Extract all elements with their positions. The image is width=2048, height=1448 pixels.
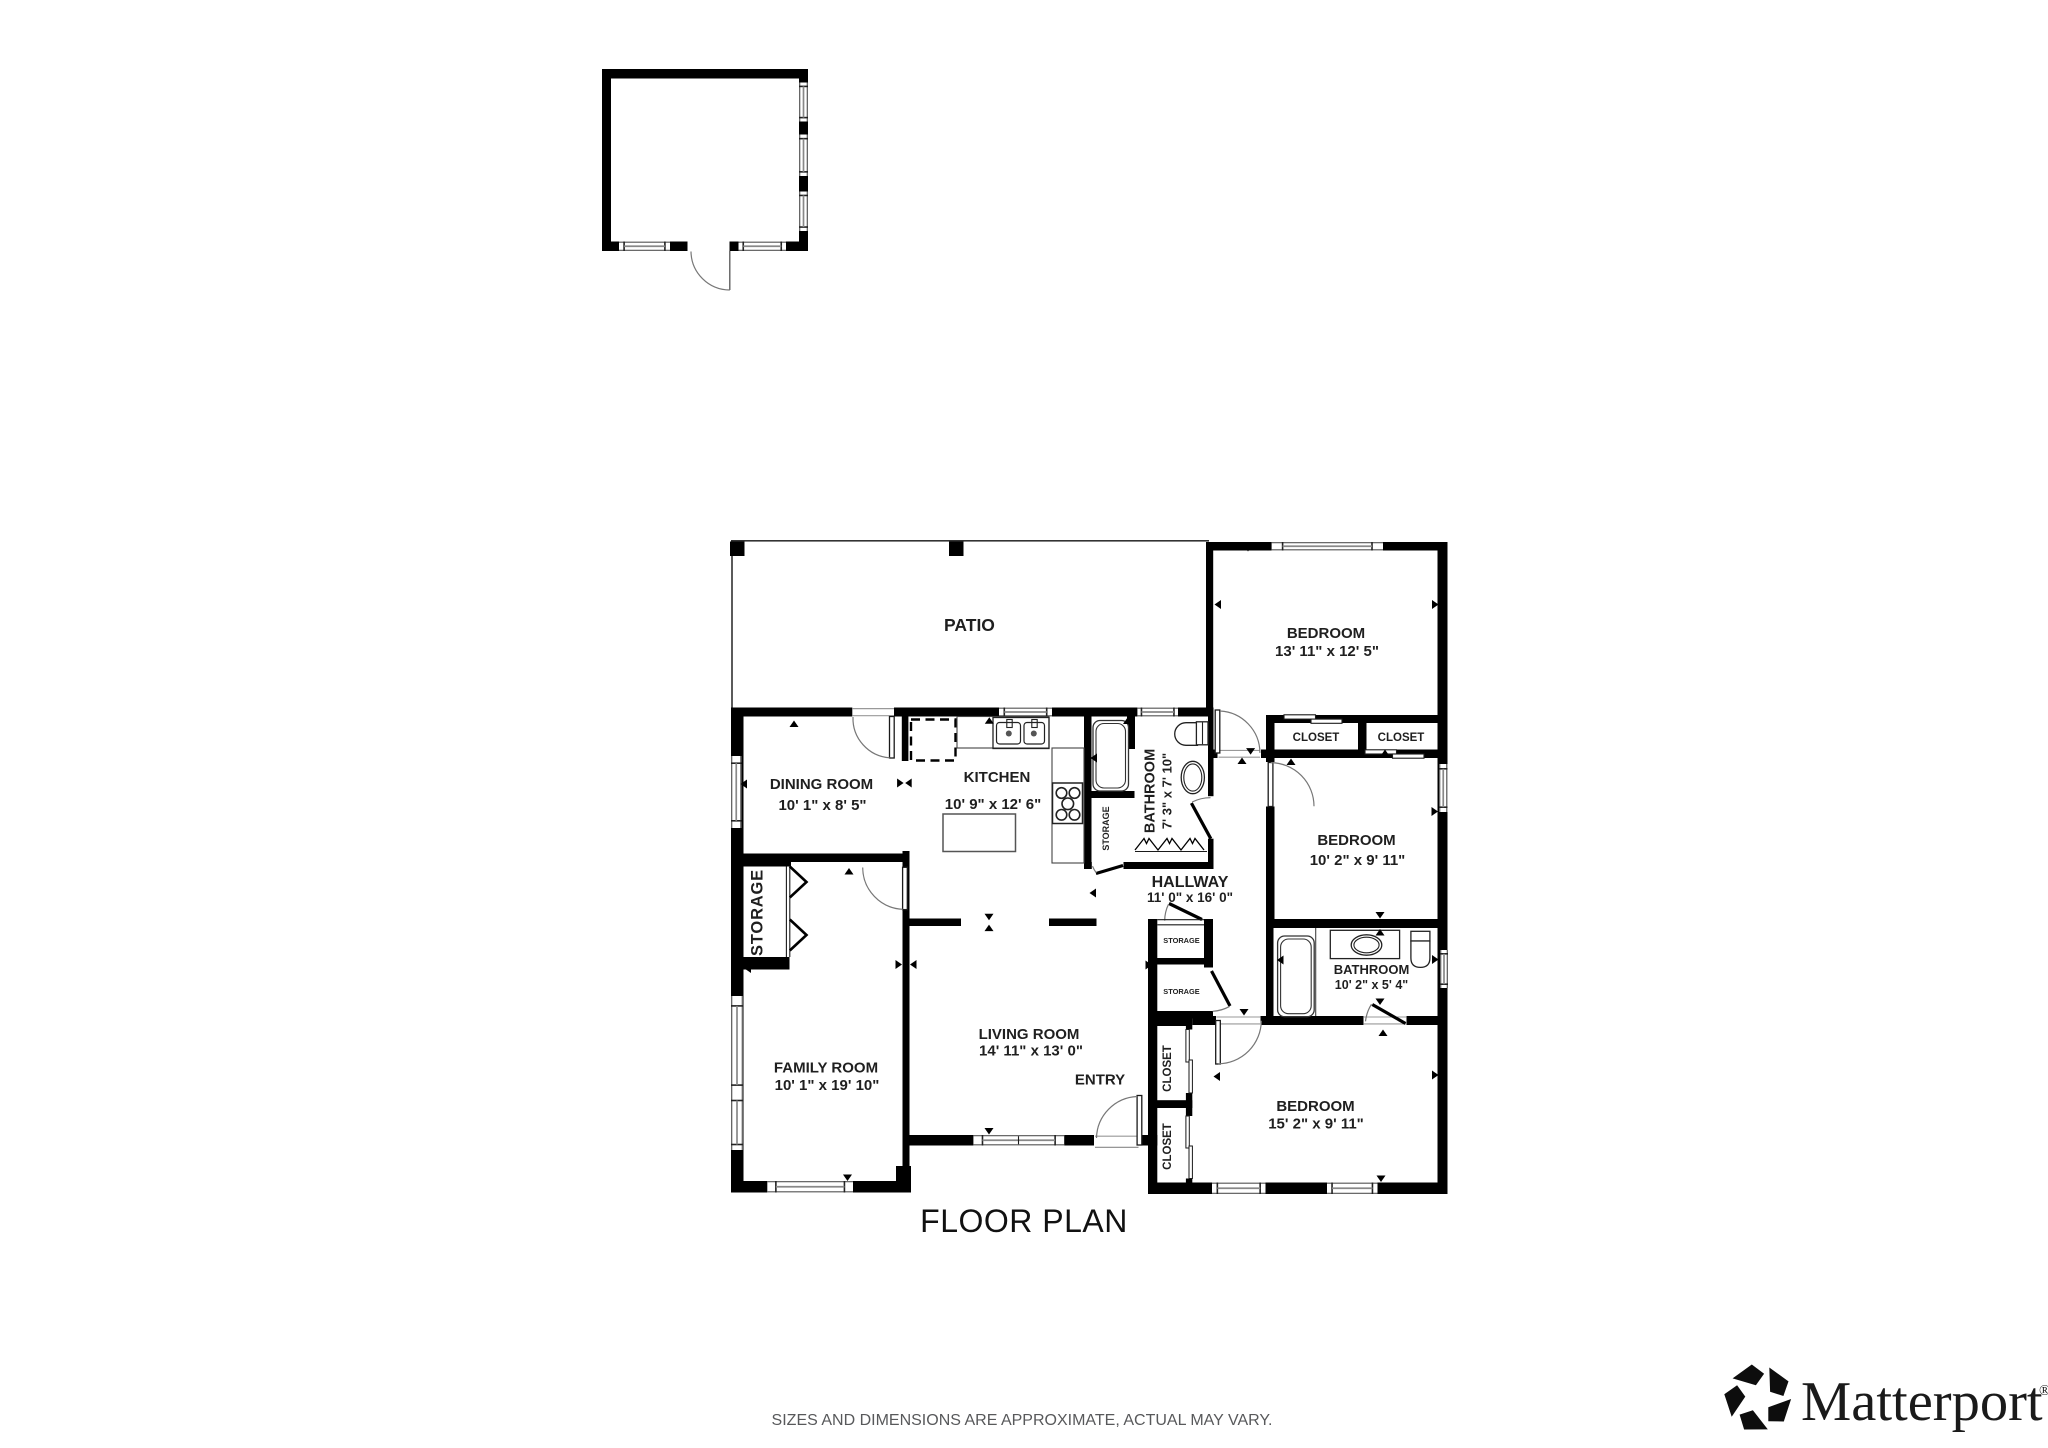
svg-text:ENTRY: ENTRY [1075, 1072, 1125, 1089]
svg-text:DINING ROOM: DINING ROOM [770, 776, 873, 793]
svg-text:BATHROOM: BATHROOM [1143, 749, 1159, 833]
svg-text:STORAGE: STORAGE [749, 869, 767, 956]
svg-text:BEDROOM: BEDROOM [1287, 625, 1365, 642]
svg-text:Matterport: Matterport [1801, 1371, 2043, 1433]
svg-text:®: ® [2039, 1383, 2048, 1399]
svg-text:PATIO: PATIO [944, 615, 995, 635]
svg-text:10' 2" x 5' 4": 10' 2" x 5' 4" [1335, 978, 1408, 992]
svg-text:CLOSET: CLOSET [1162, 1045, 1174, 1092]
svg-text:BEDROOM: BEDROOM [1276, 1098, 1354, 1115]
svg-text:BEDROOM: BEDROOM [1317, 832, 1395, 849]
svg-text:STORAGE: STORAGE [1163, 936, 1199, 945]
svg-text:15' 2" x 9' 11": 15' 2" x 9' 11" [1268, 1116, 1364, 1133]
svg-text:FLOOR PLAN: FLOOR PLAN [920, 1203, 1128, 1239]
svg-text:STORAGE: STORAGE [1101, 806, 1111, 850]
svg-text:KITCHEN: KITCHEN [964, 769, 1031, 786]
svg-text:10' 1" x 19' 10": 10' 1" x 19' 10" [775, 1077, 880, 1094]
svg-text:10' 1" x 8' 5": 10' 1" x 8' 5" [778, 797, 866, 814]
svg-text:14' 11" x 13' 0": 14' 11" x 13' 0" [979, 1043, 1083, 1060]
svg-text:FAMILY ROOM: FAMILY ROOM [774, 1060, 878, 1077]
svg-text:BATHROOM: BATHROOM [1334, 962, 1410, 977]
svg-text:LIVING ROOM: LIVING ROOM [979, 1026, 1080, 1043]
svg-text:10' 2" x 9' 11": 10' 2" x 9' 11" [1310, 852, 1406, 869]
svg-text:10' 9" x 12' 6": 10' 9" x 12' 6" [945, 796, 1041, 813]
svg-text:13' 11" x 12' 5": 13' 11" x 12' 5" [1275, 643, 1379, 660]
svg-text:CLOSET: CLOSET [1293, 732, 1340, 744]
svg-text:7' 3" x 7' 10": 7' 3" x 7' 10" [1160, 753, 1175, 829]
svg-text:CLOSET: CLOSET [1378, 732, 1425, 744]
svg-text:CLOSET: CLOSET [1162, 1123, 1174, 1170]
svg-text:HALLWAY: HALLWAY [1152, 874, 1229, 891]
svg-text:STORAGE: STORAGE [1163, 987, 1199, 996]
svg-text:11' 0" x 16' 0": 11' 0" x 16' 0" [1147, 890, 1233, 905]
svg-text:SIZES AND DIMENSIONS ARE APPRO: SIZES AND DIMENSIONS ARE APPROXIMATE, AC… [772, 1412, 1273, 1429]
